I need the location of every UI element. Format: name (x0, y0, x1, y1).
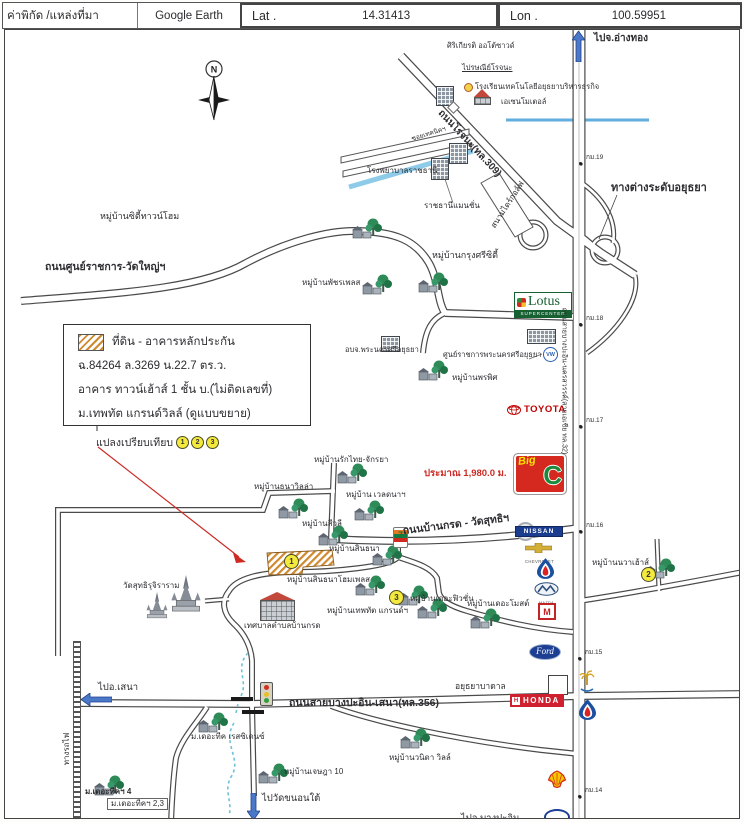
wat-sutthi-label: วัดสุทธิรุจิราราม (123, 582, 180, 590)
km16-label: กม.16 (586, 523, 603, 530)
teak23-label: ม.เดอะทีคฯ 2,3 (107, 798, 168, 810)
m-logo: M (538, 603, 556, 620)
sena-road-label: ถนนสายบางปะอิน-เสนา(ทล.356) (289, 698, 439, 709)
waladna-village-label: หมู่บ้าน เวลดนาฯ (346, 491, 406, 499)
village-icon (417, 271, 449, 300)
legend-marker-3: 3 (206, 436, 219, 449)
bigc-logo: BigC (513, 453, 567, 495)
to-angthong-arrow (572, 31, 585, 67)
to-sena-label: ไปอ.เสนา (98, 683, 138, 693)
gov-center-label: ศูนย์ราชการพระนครศรีอยุธยา (443, 351, 541, 359)
gov-center-road-label: ถนนศูนย์ราชการ-วัดใหญ่ฯ (45, 262, 165, 273)
asia-road-label: ถนนสายบางปะอิน-นครสวรรค์(สายเอเชีย ทล.32… (560, 308, 567, 454)
pornpis-village-label: หมู่บ้านพรพิศ (452, 374, 498, 382)
legend-deed-info: ฉ.84264 ล.3269 น.22.7 ตร.ว. (78, 357, 310, 375)
municipality-label: เทศบาลตำบลบ้านกรด (244, 622, 321, 630)
ayutthaya-badan-label: อยุธยาบาดาล (455, 682, 506, 691)
village-icon (351, 217, 383, 246)
theppatat-grand-label: หมู่บ้านเทพทัต แกรนด์ฯ (327, 607, 408, 615)
rojana-post-office-label: ไปรษณีย์โรจนะ (462, 64, 512, 72)
ford-logo: Ford (529, 644, 561, 660)
ptt-station-logo (579, 699, 596, 725)
patchara-place-label: หมู่บ้านพัชรเพลส (302, 279, 360, 287)
distance-label: ประมาณ 1,980.0 ม. (424, 469, 507, 479)
navahouse-village-label: หมู่บ้านนวาเฮ้าส์ (592, 559, 649, 567)
teak4-label: ม.เดอะทีคฯ 4 (85, 788, 131, 796)
legend-project-info: ม.เทพทัต แกรนด์วิลล์ (ดูแบบขยาย) (78, 405, 310, 423)
nissan-logo: NISSAN (515, 522, 561, 539)
comparable-marker-3: 3 (389, 590, 404, 605)
traffic-light-icon (260, 682, 273, 706)
ptt-logo (537, 558, 554, 584)
lon-label: Lon . (500, 9, 538, 23)
city-townhome-label: หมู่บ้านซิตี้ทาวน์โฮม (100, 212, 179, 221)
subject-swatch-icon (78, 334, 104, 351)
rakthai-village-label: หมู่บ้านรักไทย-จักรยา (314, 456, 388, 464)
legend-marker-1: 1 (176, 436, 189, 449)
palm-tree-icon (579, 669, 595, 699)
village-icon (469, 607, 501, 636)
legend-building-info: อาคาร ทาวน์เฮ้าส์ 1 ชั้น บ.(ไม่ติดเลขที่… (78, 381, 310, 399)
sirikiat-autosound-label: ศิริเกียรติ ออโต้ซาวด์ (447, 42, 515, 50)
legend-title: ที่ดิน - อาคารหลักประกัน (112, 333, 235, 351)
red-roof-building-icon (260, 592, 295, 621)
km14-label: กม.14 (585, 788, 602, 795)
mazda-logo: MAZDA (534, 582, 559, 605)
km18-label: กม.18 (586, 316, 603, 323)
comparable-marker-2: 2 (641, 567, 656, 582)
themost-village-label: หมู่บ้านเดอะโมสต์ (467, 600, 529, 608)
coord-field-label: ค่าพิกัด /แหล่งที่มา (2, 3, 137, 28)
km17-label: กม.17 (586, 418, 603, 425)
legend-marker-2: 2 (191, 436, 204, 449)
village-icon (399, 727, 431, 756)
village-icon (361, 273, 393, 302)
compass-rose: N (191, 60, 237, 127)
ratchathani-hospital-label: โรงพยาบาลราชธานี (367, 167, 438, 175)
lon-value: 100.59951 (538, 10, 740, 22)
building-icon (527, 329, 556, 344)
km15-label: กม.15 (585, 650, 602, 657)
latitude-box: Lat . 14.31413 (240, 3, 498, 28)
jessada-village-label: หมู่บ้านเจษฎา 10 (284, 768, 343, 776)
railway-label: ทางรถไฟ (63, 733, 71, 766)
wat-sutthi-temple-icon-small (145, 592, 169, 625)
comparison-legend: แปลงเปรียบเทียบ 123 (96, 434, 219, 451)
comparable-marker-1: 1 (284, 554, 299, 569)
coordinates-header: ค่าพิกัด /แหล่งที่มา Google Earth Lat . … (2, 2, 742, 29)
appraisal-map-sheet: ค่าพิกัด /แหล่งที่มา Google Earth Lat . … (0, 0, 744, 822)
pao-ayutthaya-label: อบจ.พระนครศรีอยุธยา (345, 346, 419, 354)
legend-box: ที่ดิน - อาคารหลักประกัน ฉ.84264 ล.3269 … (63, 324, 311, 426)
red-roof-building-icon (474, 89, 491, 105)
thanavilla-village-label: หมู่บ้านธนาวิลล่า (254, 483, 313, 491)
comparison-label: แปลงเปรียบเทียบ (96, 434, 173, 451)
school-label: โรงเรียนเทคโนโลยีอยุธยาบริหารธุรกิจ (475, 83, 599, 91)
village-icon (353, 499, 385, 528)
wanida-ville-label: หมู่บ้านวนิดา วิลล์ (389, 754, 451, 762)
motel-label: เอเซนโมเตอล์ (501, 98, 546, 106)
lat-value: 14.31413 (276, 10, 496, 22)
school-badge-icon (464, 83, 473, 92)
to-wat-khanon-arrow (247, 793, 260, 819)
km19-label: กม.19 (586, 155, 603, 162)
coord-source-value: Google Earth (137, 3, 240, 28)
svg-text:N: N (211, 65, 218, 75)
map-canvas: N ที่ดิน - อาคารหลักประกัน ฉ.84264 ล.326… (4, 29, 740, 819)
blue-oval-logo (544, 809, 570, 819)
village-icon (336, 462, 368, 491)
to-sena-arrow (81, 693, 112, 711)
white-box-icon (548, 675, 568, 695)
village-icon (417, 359, 449, 388)
sinthana-village-label: หมู่บ้านสินธนา (329, 545, 380, 553)
teak-residence-label: ม.เดอะทีค เรสซิเดนซ์ (191, 733, 265, 741)
fusion-village-label: หมู่บ้านเดอะฟิวชั่น (410, 595, 474, 603)
to-bangpain-label: ไปอ.บางปะอิน (461, 814, 520, 819)
shell-logo (547, 770, 567, 794)
to-angthong-label: ไปจ.อ่างทอง (594, 34, 648, 45)
sinthana-homeplace-label: หมู่บ้านสินธนาโฮมเพลส (287, 576, 370, 584)
to-wat-khanon-label: ไปวัดขนอนใต้ (262, 794, 320, 804)
longitude-box: Lon . 100.59951 (498, 3, 742, 28)
ratchathani-mansion-label: ราชธานีแมนชั่น (424, 202, 480, 210)
interchange-label: ทางต่างระดับอยุธยา (611, 183, 707, 195)
vw-logo: VW (543, 347, 558, 362)
toyota-logo: TOYOTA (507, 404, 566, 415)
krungsri-city-label: หมู่บ้านกรุงศรีซิตี้ (432, 251, 498, 260)
lat-label: Lat . (242, 9, 276, 23)
honda-logo: HHONDA (510, 694, 564, 707)
sivalee-village-label: หมู่บ้านสีวลี (302, 520, 342, 528)
